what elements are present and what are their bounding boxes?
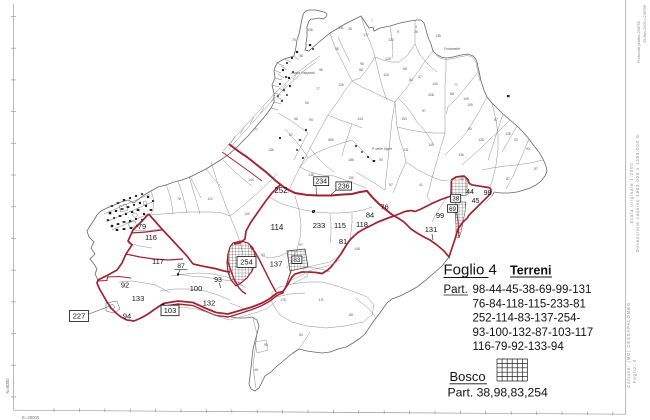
svg-text:41: 41 <box>419 183 423 187</box>
svg-text:90: 90 <box>379 158 383 162</box>
svg-text:N=8000: N=8000 <box>5 378 10 394</box>
svg-text:68: 68 <box>403 67 407 71</box>
svg-text:177: 177 <box>363 33 369 37</box>
svg-text:131: 131 <box>338 26 344 30</box>
svg-text:208: 208 <box>428 93 434 97</box>
svg-text:136: 136 <box>307 28 313 32</box>
svg-text:87: 87 <box>289 133 293 137</box>
svg-text:77: 77 <box>254 128 258 132</box>
svg-text:38: 38 <box>452 196 460 203</box>
svg-text:94: 94 <box>123 312 131 321</box>
svg-text:140: 140 <box>244 212 250 216</box>
svg-text:76-84-118-115-233-81: 76-84-118-115-233-81 <box>473 298 586 310</box>
svg-text:25-Nov-2005 n.238756: 25-Nov-2005 n.238756 <box>643 5 647 43</box>
svg-text:7: 7 <box>371 19 373 23</box>
svg-text:Fontanelle: Fontanelle <box>444 47 460 51</box>
svg-text:76: 76 <box>380 203 388 212</box>
svg-text:140: 140 <box>432 82 438 86</box>
svg-text:254: 254 <box>240 258 253 267</box>
svg-text:139: 139 <box>435 34 441 38</box>
svg-text:58: 58 <box>335 47 339 51</box>
svg-text:131: 131 <box>403 148 409 152</box>
svg-text:Part. 38,98,83,254: Part. 38,98,83,254 <box>448 386 549 400</box>
svg-text:83: 83 <box>299 333 303 337</box>
svg-text:176: 176 <box>280 298 286 302</box>
svg-text:103: 103 <box>164 306 177 315</box>
svg-text:9: 9 <box>397 30 399 34</box>
svg-text:26: 26 <box>348 27 352 31</box>
svg-text:97: 97 <box>422 109 426 113</box>
svg-text:87: 87 <box>506 177 510 181</box>
svg-text:96: 96 <box>319 68 323 72</box>
svg-text:84: 84 <box>366 211 374 220</box>
svg-text:95: 95 <box>309 118 313 122</box>
svg-text:83: 83 <box>261 253 265 257</box>
svg-text:47: 47 <box>418 75 422 79</box>
svg-text:77: 77 <box>454 83 458 87</box>
svg-text:Comune: (MC) CESSAPALOMBO: Comune: (MC) CESSAPALOMBO <box>626 302 631 388</box>
svg-text:81: 81 <box>339 237 347 246</box>
svg-text:137: 137 <box>270 260 283 269</box>
svg-text:69: 69 <box>449 206 457 213</box>
svg-text:109: 109 <box>467 103 473 107</box>
svg-text:136: 136 <box>458 153 464 157</box>
svg-text:92: 92 <box>121 281 129 290</box>
svg-text:99: 99 <box>436 211 444 220</box>
svg-text:Foglio: 4: Foglio: 4 <box>632 359 637 383</box>
svg-text:Protocollo pratica 238756: Protocollo pratica 238756 <box>637 21 641 63</box>
svg-text:87: 87 <box>177 263 185 270</box>
svg-text:117: 117 <box>152 257 164 266</box>
svg-text:128: 128 <box>478 138 484 142</box>
svg-text:234: 234 <box>315 179 327 186</box>
svg-text:130: 130 <box>388 38 394 42</box>
svg-text:87: 87 <box>494 118 498 122</box>
svg-text:Foglio 4: Foglio 4 <box>444 262 497 279</box>
svg-text:Bosco: Bosco <box>450 369 486 384</box>
svg-text:144: 144 <box>248 178 254 182</box>
svg-text:93: 93 <box>514 138 518 142</box>
svg-text:112: 112 <box>207 197 212 201</box>
svg-text:252-114-83-137-254-: 252-114-83-137-254- <box>473 313 581 325</box>
svg-text:233: 233 <box>313 221 326 230</box>
svg-text:96: 96 <box>360 62 364 66</box>
svg-text:133: 133 <box>132 294 145 303</box>
svg-text:83: 83 <box>293 257 301 264</box>
svg-text:131: 131 <box>425 225 438 234</box>
svg-text:77: 77 <box>316 87 320 91</box>
svg-text:93: 93 <box>214 277 222 284</box>
svg-text:114: 114 <box>271 223 284 232</box>
svg-text:75: 75 <box>292 38 296 42</box>
svg-text:58: 58 <box>294 117 298 121</box>
svg-text:44: 44 <box>466 189 474 196</box>
svg-text:144: 144 <box>357 117 363 121</box>
svg-text:109: 109 <box>463 97 469 101</box>
svg-text:93-100-132-87-103-117: 93-100-132-87-103-117 <box>473 327 594 339</box>
svg-text:88: 88 <box>359 68 363 72</box>
svg-text:126: 126 <box>385 57 391 61</box>
svg-text:138: 138 <box>308 173 314 177</box>
svg-text:58: 58 <box>299 54 303 58</box>
svg-text:E=28000: E=28000 <box>22 415 40 420</box>
svg-text:96: 96 <box>305 101 309 105</box>
svg-text:94: 94 <box>264 343 268 347</box>
svg-text:4: 4 <box>415 25 417 29</box>
svg-text:1 B: 1 B <box>319 298 325 302</box>
svg-text:680: 680 <box>328 138 334 142</box>
svg-text:118: 118 <box>383 73 388 77</box>
svg-text:26: 26 <box>414 30 418 34</box>
svg-text:Terreni: Terreni <box>510 264 551 278</box>
svg-text:252: 252 <box>274 186 288 195</box>
svg-text:227: 227 <box>73 312 86 321</box>
svg-text:116-79-92-133-94: 116-79-92-133-94 <box>473 341 565 353</box>
svg-text:153: 153 <box>401 117 407 121</box>
svg-text:115: 115 <box>334 221 346 230</box>
svg-text:140: 140 <box>428 143 434 147</box>
svg-text:97: 97 <box>299 243 303 247</box>
svg-text:236: 236 <box>338 184 350 191</box>
svg-text:118: 118 <box>356 220 368 229</box>
svg-text:79: 79 <box>138 222 146 231</box>
svg-text:78: 78 <box>177 197 181 201</box>
svg-text:Dimensione cassino 1943.000 x: Dimensione cassino 1943.000 x 1383.000 m <box>635 134 640 253</box>
svg-text:93: 93 <box>526 147 530 151</box>
svg-text:126: 126 <box>338 83 344 87</box>
svg-text:136: 136 <box>268 148 274 152</box>
svg-text:Part.: Part. <box>444 284 468 296</box>
svg-text:45: 45 <box>254 368 258 372</box>
svg-text:84: 84 <box>409 78 413 82</box>
svg-text:98: 98 <box>484 190 492 197</box>
svg-text:116: 116 <box>145 233 157 242</box>
svg-text:98-44-45-38-69-99-131: 98-44-45-38-69-99-131 <box>473 284 592 296</box>
svg-text:45: 45 <box>472 198 480 205</box>
svg-text:188: 188 <box>348 158 354 162</box>
svg-text:97: 97 <box>389 183 393 187</box>
svg-text:150: 150 <box>348 176 354 180</box>
svg-text:Costa Pappardi: Costa Pappardi <box>291 71 315 75</box>
svg-text:128: 128 <box>505 132 511 136</box>
svg-text:68: 68 <box>349 313 353 317</box>
svg-text:100: 100 <box>190 284 203 293</box>
svg-text:Scala originale 1:2000: Scala originale 1:2000 <box>629 162 634 223</box>
svg-text:132: 132 <box>203 299 216 308</box>
svg-text:88: 88 <box>450 92 454 96</box>
svg-text:148: 148 <box>354 247 360 251</box>
svg-text:87: 87 <box>534 167 538 171</box>
svg-text:90: 90 <box>468 127 472 131</box>
svg-text:P. delle Vigne: P. delle Vigne <box>372 147 393 151</box>
